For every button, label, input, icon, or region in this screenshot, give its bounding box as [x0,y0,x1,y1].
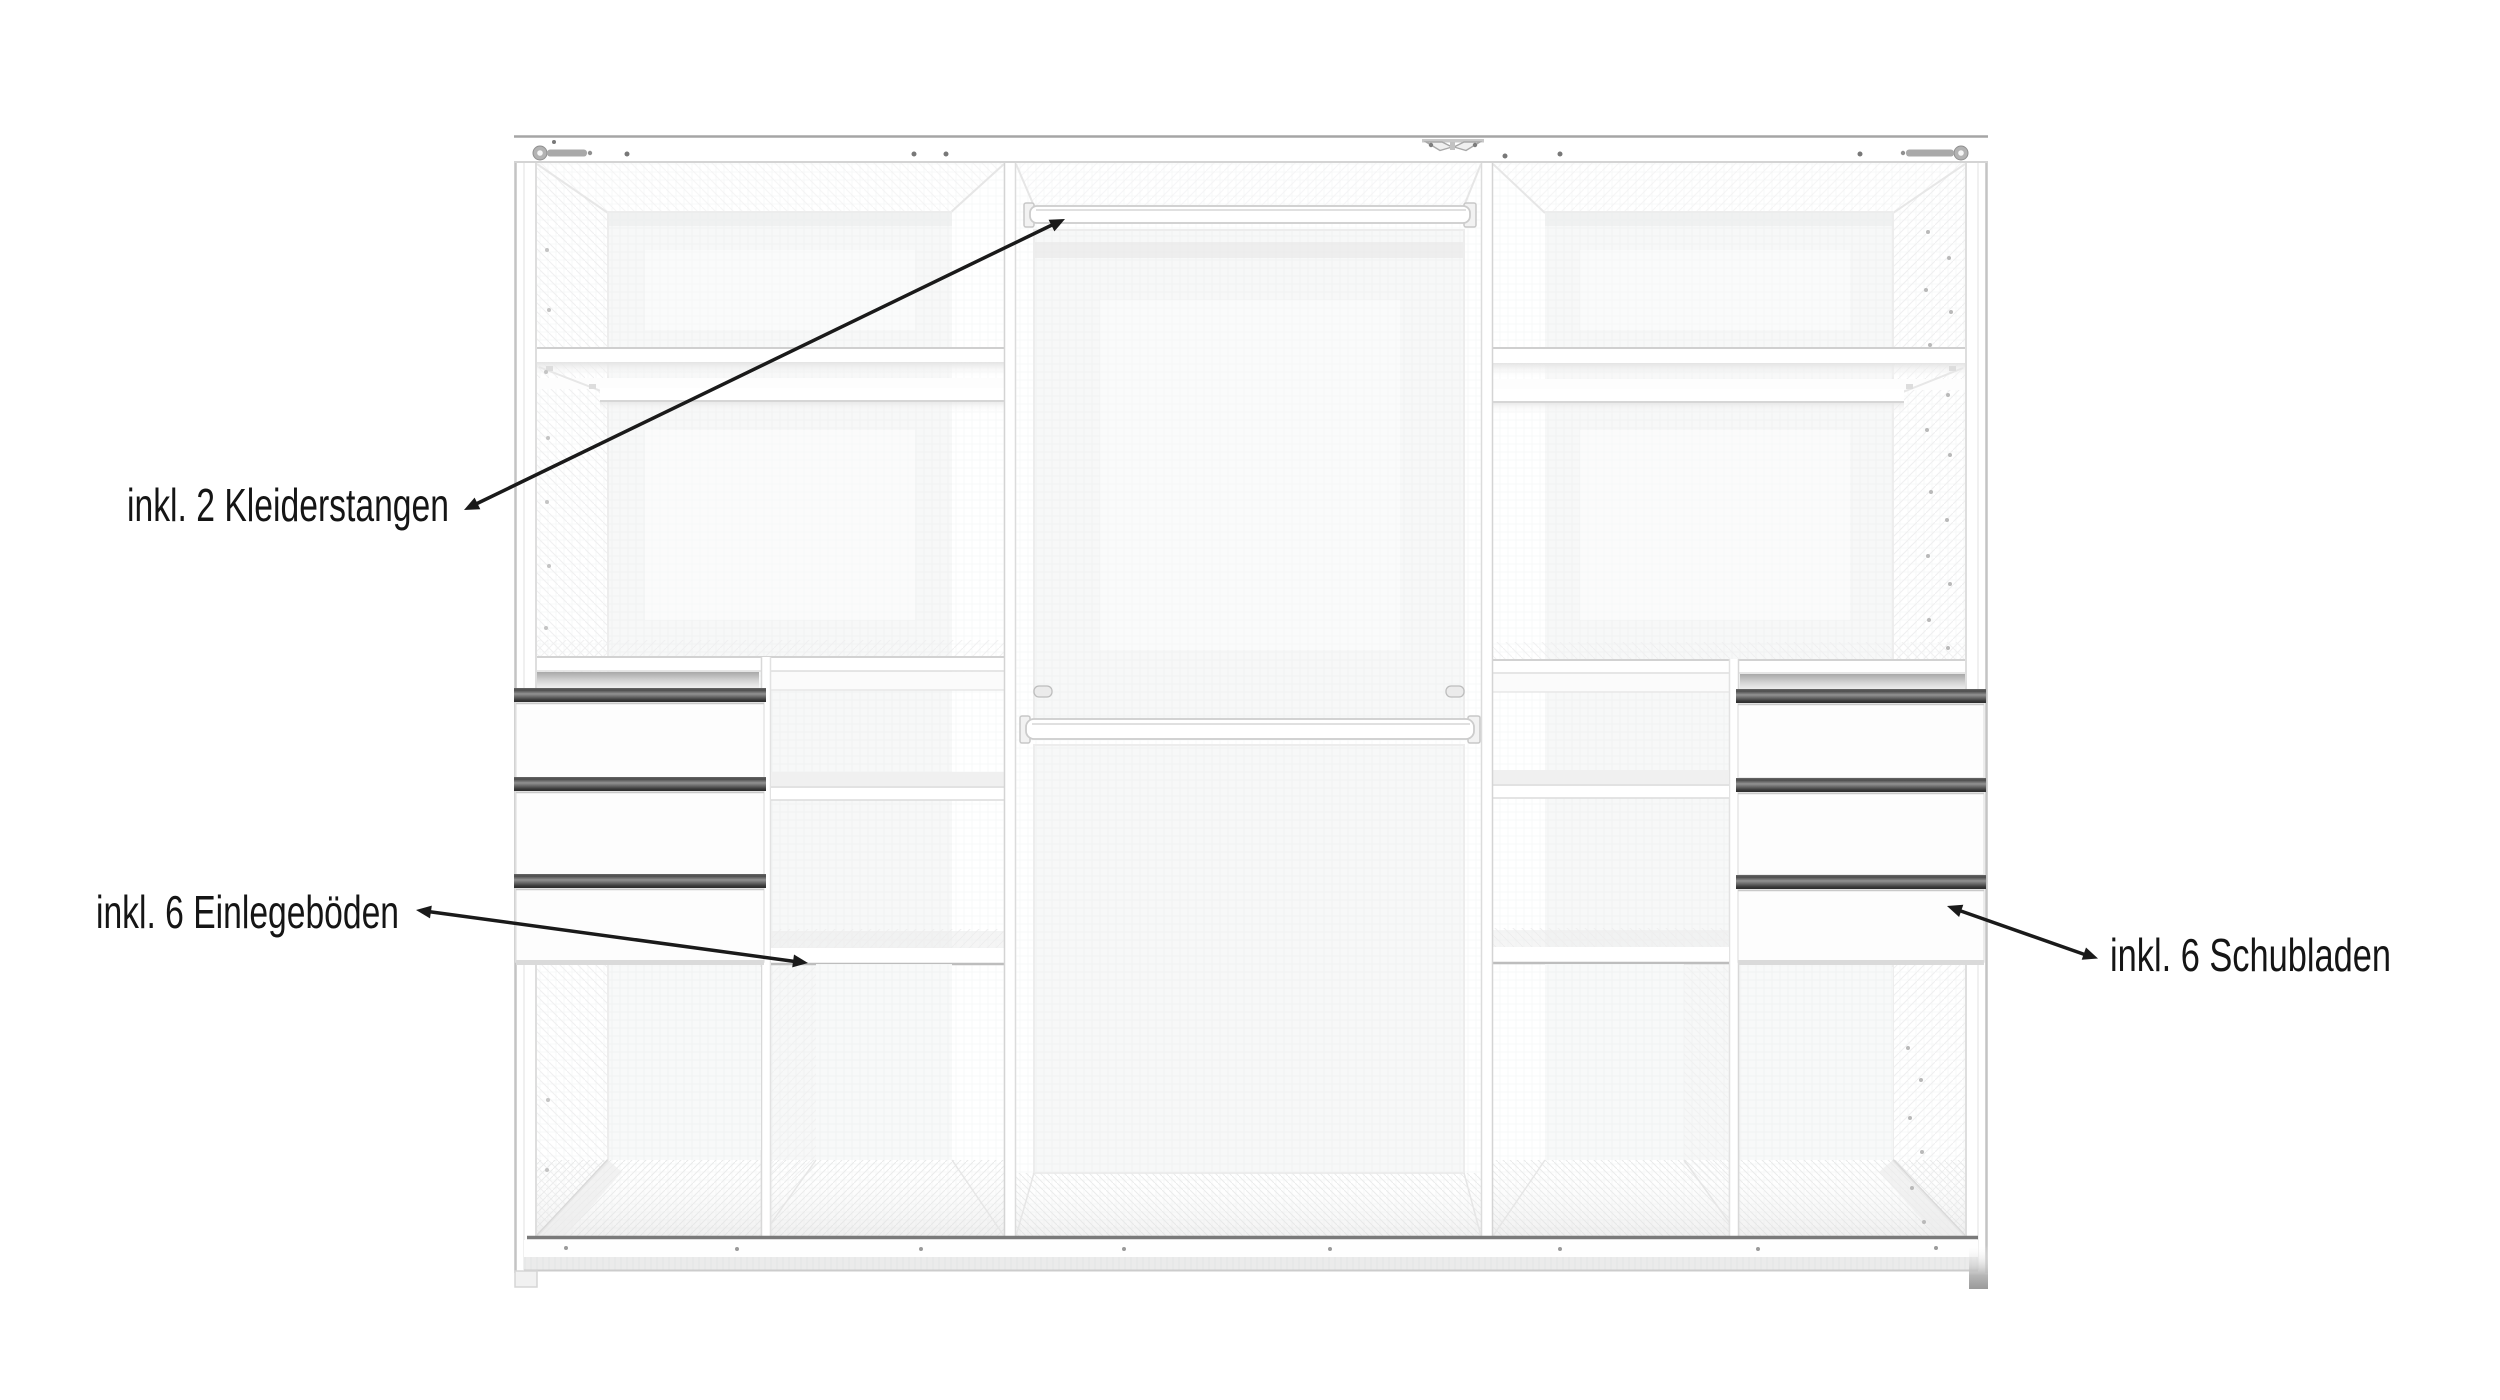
svg-text:inkl. 6 Einlegeböden: inkl. 6 Einlegeböden [96,886,399,938]
svg-text:inkl. 2 Kleiderstangen: inkl. 2 Kleiderstangen [127,479,449,531]
svg-text:inkl. 6 Schubladen: inkl. 6 Schubladen [2110,929,2391,981]
